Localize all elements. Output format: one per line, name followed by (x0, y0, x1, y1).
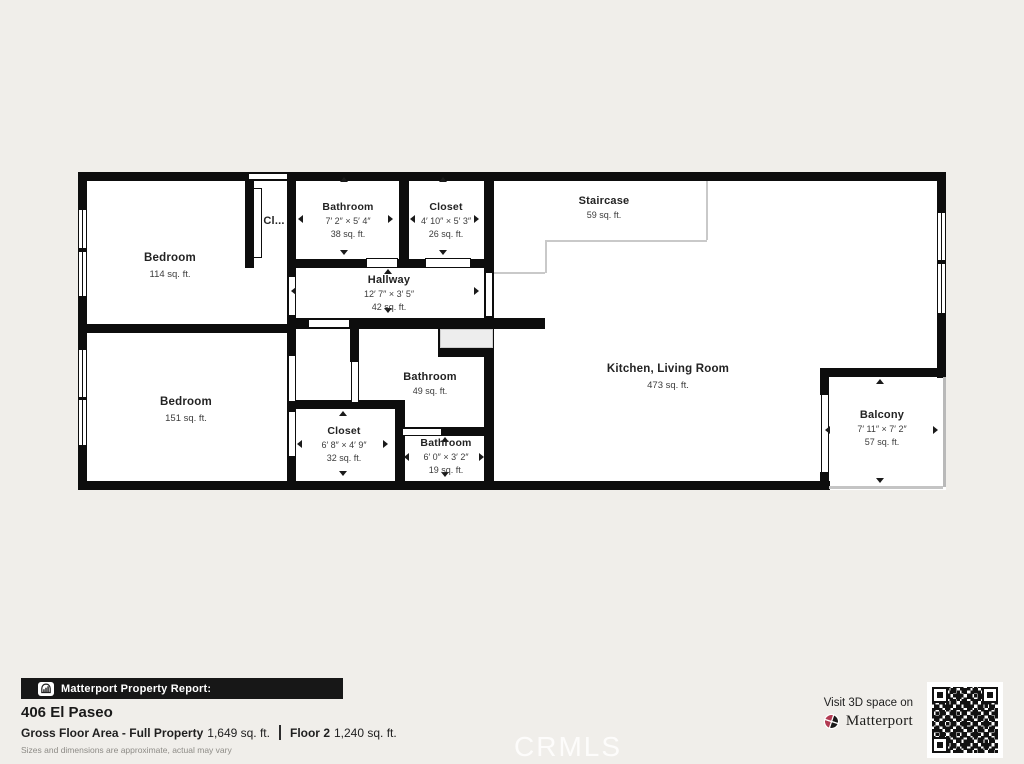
staircase-outline-step-h (545, 240, 707, 242)
staircase-outline-step-v (545, 240, 547, 273)
balcony-railing-bottom (829, 486, 943, 489)
wall-balcony-top (820, 368, 946, 377)
wall-closet2-right (395, 400, 405, 490)
wall-bedrooms-divider (78, 324, 296, 333)
room-label-closet-hall: Cl... (263, 215, 284, 227)
report-title-bar: Matterport Property Report: (21, 678, 343, 699)
room-label-bathroom-2: Bathroom 49 sq. ft. (403, 371, 457, 396)
wall-balcony-left-upper (820, 377, 829, 395)
disclaimer-text: Sizes and dimensions are approximate, ac… (21, 745, 232, 755)
dim-arrow-closet1-right (474, 215, 479, 223)
dim-arrow-closet2-left (297, 440, 302, 448)
dim-arrow-closet1-up (439, 177, 447, 182)
window-bedroom1-b (78, 252, 87, 296)
room-label-bedroom-1: Bedroom 114 sq. ft. (144, 252, 196, 280)
door-closet1 (425, 258, 471, 268)
door-bedroom2 (288, 355, 296, 402)
dim-arrow-bathroom3-right (479, 453, 484, 461)
staircase-outline-right (706, 181, 708, 240)
wall-outer-bottom (78, 481, 830, 490)
window-kitchen-a (937, 213, 946, 260)
door-bedroom1 (288, 276, 296, 316)
room-label-staircase: Staircase 59 sq. ft. (579, 195, 630, 220)
wall-closet2-top (287, 400, 405, 409)
qr-finder-top-right (982, 687, 998, 703)
dim-arrow-closet2-down (339, 471, 347, 476)
door-bathroom2 (351, 361, 359, 403)
door-hallway-landing (308, 319, 350, 328)
crmls-watermark: CRMLS (514, 731, 622, 763)
visit-3d-text: Visit 3D space on (815, 697, 913, 709)
wall-bathroom2-left (350, 327, 359, 362)
floor-area-summary: Gross Floor Area - Full Property 1,649 s… (21, 725, 397, 740)
room-label-closet-1: Closet 4′ 10″ × 5′ 3″ 26 sq. ft. (421, 201, 471, 239)
property-address: 406 El Paseo (21, 704, 113, 721)
dim-arrow-balcony-down (876, 478, 884, 483)
room-label-kitchen-living: Kitchen, Living Room 473 sq. ft. (607, 363, 729, 391)
dim-arrow-bathroom1-left (298, 215, 303, 223)
gross-floor-area-value: 1,649 sq. ft. (207, 726, 270, 740)
wall-shower-bottom (438, 348, 494, 357)
matterport-brand: Matterport (818, 713, 913, 730)
window-bedroom2-a (78, 350, 87, 397)
shower-nook (440, 329, 493, 348)
qr-finder-bottom-left (932, 737, 948, 753)
window-bedroom1-a (78, 210, 87, 248)
door-closet2 (288, 411, 296, 457)
qr-finder-top-left (932, 687, 948, 703)
balcony-railing-right (943, 377, 946, 487)
room-label-closet-2: Closet 6′ 8″ × 4′ 9″ 32 sq. ft. (321, 425, 366, 463)
window-bedroom2-b (78, 400, 87, 445)
matterport-floorplan-report: Bedroom 114 sq. ft. Cl... Bathroom 7′ 2″… (0, 0, 1024, 764)
room-label-bathroom-1: Bathroom 7′ 2″ × 5′ 4″ 38 sq. ft. (322, 201, 373, 239)
room-label-bedroom-2: Bedroom 151 sq. ft. (160, 396, 212, 424)
dim-arrow-bathroom3-left (404, 453, 409, 461)
dim-arrow-balcony-right (933, 426, 938, 434)
floor2-value: 1,240 sq. ft. (334, 726, 397, 740)
door-bathroom1 (366, 258, 398, 268)
dim-arrow-balcony-left (825, 426, 830, 434)
room-label-bathroom-3: Bathroom 6′ 0″ × 3′ 2″ 19 sq. ft. (420, 437, 471, 475)
wall-balcony-left-lower (820, 472, 829, 490)
wall-bathroom1-closet1 (399, 172, 409, 268)
matterport-logo-icon (823, 713, 840, 730)
door-bathroom3 (402, 428, 442, 436)
dim-arrow-closet1-down (439, 250, 447, 255)
dim-arrow-bathroom1-right (388, 215, 393, 223)
dim-arrow-bathroom1-down (340, 250, 348, 255)
window-kitchen-b (937, 264, 946, 313)
separator-bar (279, 725, 281, 740)
dim-arrow-closet1-left (410, 215, 415, 223)
matterport-wordmark: Matterport (846, 713, 913, 730)
dim-arrow-bathroom1-up (340, 177, 348, 182)
dim-arrow-closet2-right (383, 440, 388, 448)
report-title-label: Matterport Property Report: (61, 683, 211, 695)
dim-arrow-hallway-right (474, 287, 479, 295)
door-closet-hall (253, 188, 262, 258)
wall-outer-top (78, 172, 946, 181)
room-label-balcony: Balcony 7′ 11″ × 7′ 2″ 57 sq. ft. (857, 409, 906, 447)
opening-closet-top (249, 172, 287, 179)
staircase-outline-bottom (494, 272, 545, 274)
dim-arrow-balcony-up (876, 379, 884, 384)
door-hallway-kitchen (485, 272, 493, 317)
matterport-report-icon (38, 682, 54, 696)
dim-arrow-hallway-left (291, 287, 296, 295)
dim-arrow-closet2-up (339, 411, 347, 416)
gross-floor-area-label: Gross Floor Area - Full Property (21, 726, 203, 740)
floor2-label: Floor 2 (290, 726, 330, 740)
room-label-hallway: Hallway 12′ 7″ × 3′ 5″ 42 sq. ft. (364, 274, 414, 312)
qr-code (927, 682, 1003, 758)
